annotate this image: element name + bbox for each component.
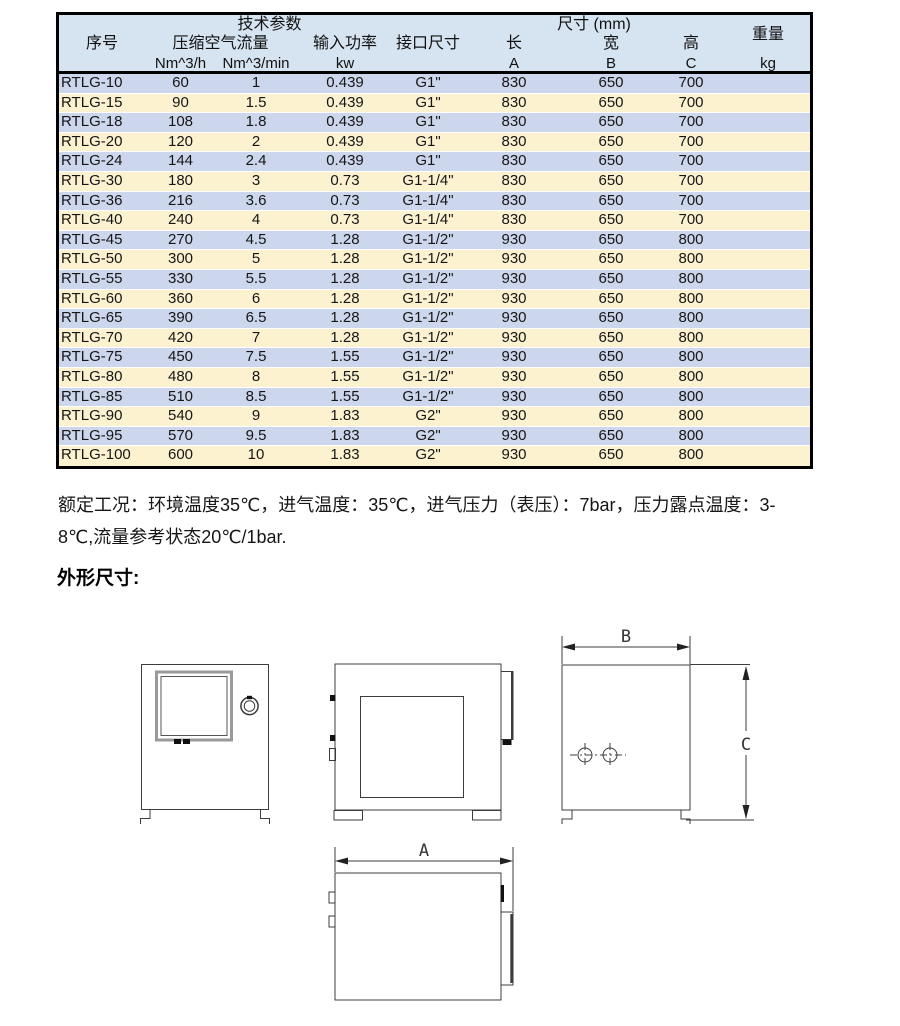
bottom-tab-bottom — [329, 916, 335, 927]
front-foot-left — [141, 810, 151, 825]
panel-tab-right — [183, 739, 190, 744]
rear-foot-left — [562, 810, 572, 824]
knob-inner-circle — [244, 701, 255, 712]
display-panel-frame — [157, 672, 232, 740]
dim-c-arrow-top — [743, 666, 750, 680]
dim-label-b: B — [621, 627, 631, 647]
dim-c-arrow-bottom — [743, 805, 750, 819]
side-foot-right — [473, 811, 502, 821]
rear-cabinet-outline — [562, 665, 690, 810]
dim-b-arrow-left — [562, 644, 575, 651]
dim-a-arrow-right — [500, 858, 513, 865]
front-foot-right — [261, 810, 270, 825]
bottom-view: A — [329, 841, 513, 1000]
rear-foot-right — [681, 810, 690, 824]
knob-outer-ring — [241, 697, 258, 714]
side-inner-panel — [361, 697, 464, 798]
bottom-cabinet-outline — [335, 873, 501, 1000]
dim-a-arrow-left — [335, 858, 348, 865]
panel-tab-left — [174, 739, 181, 744]
side-cabinet-outline — [335, 664, 501, 810]
side-nub-bottom — [330, 735, 336, 741]
front-view — [141, 665, 270, 825]
side-panel-nub — [503, 740, 512, 746]
outline-dimension-drawings: B C A — [0, 0, 900, 1026]
knob-top-mark — [247, 696, 252, 699]
display-panel-inner — [161, 677, 227, 736]
bottom-hinge-mark — [501, 885, 505, 902]
dim-b-arrow-right — [677, 644, 690, 651]
dim-label-c: C — [741, 735, 751, 755]
side-view — [330, 664, 514, 820]
spec-sheet-page: 技术参数 尺寸 (mm) 重量 序号 压缩空气流量 输入功率 接口尺寸 长 宽 … — [0, 0, 900, 1026]
rear-view: B C — [562, 627, 754, 824]
bottom-tab-top — [329, 892, 335, 903]
dim-label-a: A — [419, 841, 429, 861]
side-nub-top — [330, 695, 336, 701]
side-foot-left — [334, 811, 363, 821]
